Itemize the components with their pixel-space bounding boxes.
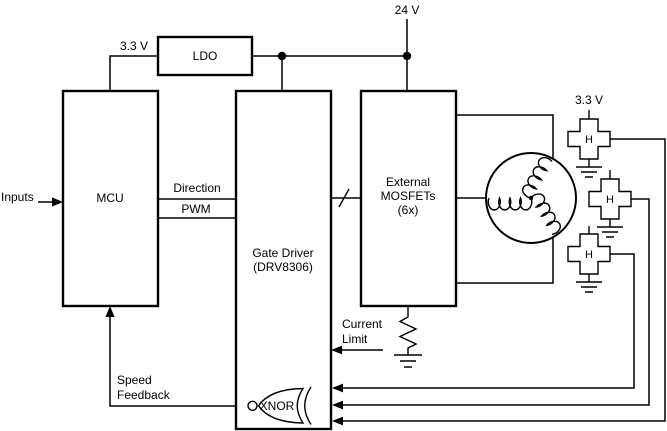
label-33v-ldo: 3.3 V <box>120 39 148 53</box>
gate-driver-label-line2: (DRV8306) <box>253 260 313 274</box>
label-speed-feedback-line2: Feedback <box>117 388 171 402</box>
mcu-block-label: MCU <box>96 191 123 205</box>
label-24v: 24 V <box>395 3 420 17</box>
label-33v-hall: 3.3 V <box>575 93 603 107</box>
hall1-label: H <box>585 134 593 146</box>
hall2-label: H <box>606 194 614 206</box>
wire-phase-a <box>456 115 553 159</box>
sense-resistor <box>400 306 416 355</box>
block-diagram: H H H XNOR 24 V 3.3 V 3.3 V LDO MCU Gate… <box>0 0 667 431</box>
mosfets-label-line2: MOSFETs <box>381 189 436 203</box>
gate-driver-label-line1: Gate Driver <box>252 246 313 260</box>
hall-sensor-1: H <box>568 110 610 177</box>
ldo-block-label: LDO <box>193 49 218 63</box>
hall1-ground-symbol <box>576 159 602 177</box>
hall2-ground-symbol <box>597 219 623 237</box>
hall-sensor-2: H <box>589 170 631 237</box>
mosfets-label-line1: External <box>386 175 430 189</box>
motor-symbol <box>486 153 576 243</box>
hall-sensor-3: H <box>568 226 610 292</box>
junction-dot-left <box>278 52 286 60</box>
label-direction: Direction <box>173 181 220 195</box>
current-limit-arrowhead <box>331 346 342 355</box>
mosfets-label-line3: (6x) <box>398 203 419 217</box>
xnor-input2-arrowhead <box>332 401 343 410</box>
inputs-arrowhead <box>52 197 63 206</box>
xnor-input1-arrowhead <box>332 384 343 393</box>
resistor-ground-symbol <box>394 355 422 367</box>
label-inputs: Inputs <box>1 190 34 204</box>
diagram-svg: H H H XNOR 24 V 3.3 V 3.3 V LDO MCU Gate… <box>0 0 667 431</box>
wire-phase-c <box>456 238 553 283</box>
wire-ldo-to-mcu <box>110 56 158 91</box>
junction-dot-right <box>403 52 411 60</box>
label-pwm: PWM <box>181 202 210 216</box>
speed-feedback-arrowhead <box>105 306 114 317</box>
hall3-ground-symbol <box>576 274 602 292</box>
label-speed-feedback-line1: Speed <box>117 373 152 387</box>
xnor-label: XNOR <box>260 399 295 413</box>
xnor-output-bubble <box>248 401 257 410</box>
label-current-limit-line1: Current <box>342 317 383 331</box>
hall3-label: H <box>585 249 593 261</box>
xnor-input3-arrowhead <box>332 417 343 426</box>
label-current-limit-line2: Limit <box>342 332 368 346</box>
